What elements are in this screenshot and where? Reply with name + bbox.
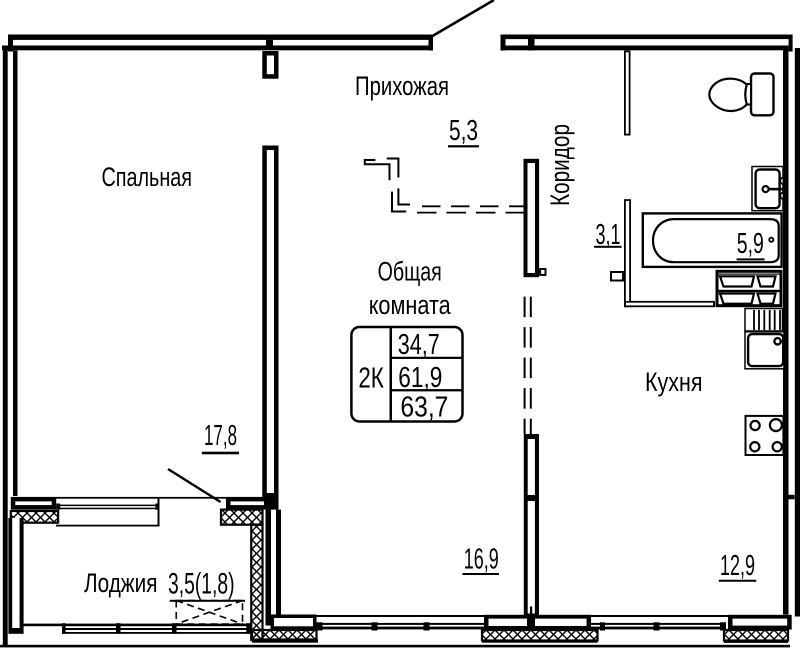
svg-text:2К: 2К (358, 362, 383, 394)
svg-text:Прихожая: Прихожая (355, 71, 449, 101)
svg-text:17,8: 17,8 (204, 420, 237, 452)
svg-text:комната: комната (369, 290, 452, 320)
svg-text:63,7: 63,7 (400, 391, 448, 423)
svg-text:16,9: 16,9 (464, 544, 499, 576)
svg-text:5,3: 5,3 (449, 115, 478, 147)
svg-text:Коридор: Коридор (545, 124, 575, 206)
svg-text:5,9: 5,9 (737, 228, 764, 260)
svg-text:34,7: 34,7 (398, 329, 440, 361)
svg-text:61,9: 61,9 (398, 362, 442, 394)
svg-text:Общая: Общая (378, 257, 442, 287)
svg-text:Лоджия: Лоджия (84, 568, 158, 598)
svg-text:12,9: 12,9 (720, 550, 755, 582)
svg-text:3,5(1,8): 3,5(1,8) (168, 568, 235, 601)
svg-text:Кухня: Кухня (645, 367, 703, 397)
svg-text:Спальная: Спальная (102, 162, 193, 192)
